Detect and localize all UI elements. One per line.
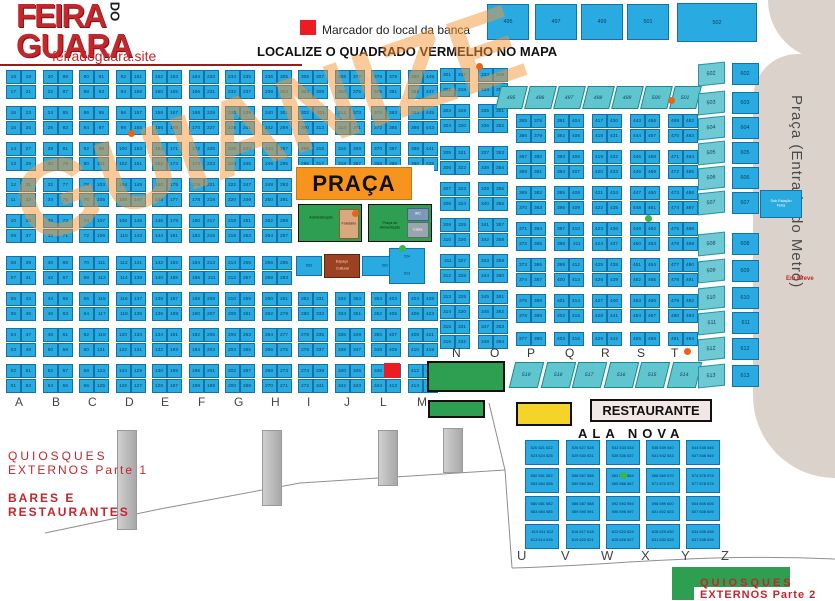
stall-cell[interactable]: 357 xyxy=(493,218,508,232)
stall-cell[interactable]: 348 xyxy=(371,343,386,357)
stall-cell[interactable]: 452 xyxy=(630,273,645,287)
stall-cell[interactable]: 308 xyxy=(440,197,455,211)
stall-cell[interactable]: 40 xyxy=(43,256,58,270)
stall-cell[interactable]: 302 xyxy=(440,83,455,97)
stall-cell[interactable]: 198 xyxy=(189,379,204,393)
stall-cell[interactable]: 341 xyxy=(478,218,493,232)
stall-cell[interactable]: 342 xyxy=(335,379,350,393)
stall-cell[interactable]: 285 xyxy=(277,256,292,270)
stall-cell[interactable]: 314 xyxy=(335,121,350,135)
stall-cell[interactable]: 490 xyxy=(683,258,698,272)
stall-cell[interactable]: 309 xyxy=(313,85,328,99)
stall-cell[interactable]: 174 xyxy=(189,157,204,171)
stall-cell[interactable]: 373 xyxy=(516,258,531,272)
stall-cell[interactable]: 339 xyxy=(313,364,328,378)
stall-cell[interactable]: 248 xyxy=(262,178,277,192)
stall-cell[interactable]: 334 xyxy=(335,307,350,321)
stall-cell[interactable]: 131 xyxy=(131,343,146,357)
banca-marker[interactable] xyxy=(384,363,400,378)
stall-cell[interactable]: 297 xyxy=(277,142,292,156)
stall-cell[interactable]: 269 xyxy=(240,379,255,393)
stall-cell[interactable]: 134 xyxy=(152,328,167,342)
alanova-box[interactable]: 574 575 576577 578 579 xyxy=(686,468,720,493)
skew-stall-cell[interactable]: 514 xyxy=(666,362,701,388)
stall-cell[interactable]: 07 xyxy=(6,271,21,285)
stall-cell[interactable]: 281 xyxy=(277,292,292,306)
stall-cell[interactable]: 370 xyxy=(371,142,386,156)
stall-cell[interactable]: 136 xyxy=(152,307,167,321)
stall-cell[interactable]: 26 xyxy=(43,121,58,135)
stall-cell[interactable]: 167 xyxy=(167,106,182,120)
stall-cell[interactable]: 247 xyxy=(240,178,255,192)
stall-cell[interactable]: 142 xyxy=(152,256,167,270)
stall-cell[interactable]: 205 xyxy=(204,328,219,342)
stall-cell[interactable]: 82 xyxy=(79,142,94,156)
stall-cell[interactable]: 160 xyxy=(152,85,167,99)
stall-cell[interactable]: 384 xyxy=(408,106,423,120)
stall-cell[interactable]: 203 xyxy=(204,343,219,357)
stall-cell[interactable]: 208 xyxy=(225,307,240,321)
stall-cell[interactable]: 272 xyxy=(298,379,313,393)
stall-cell[interactable]: 96 xyxy=(116,106,131,120)
stall-cell[interactable]: 412 xyxy=(408,364,423,378)
stall-cell[interactable]: 251 xyxy=(240,214,255,228)
stall-cell[interactable]: 185 xyxy=(167,271,182,285)
stall-cell[interactable]: 35 xyxy=(21,214,36,228)
stall-cell[interactable]: 158 xyxy=(152,106,167,120)
stall-cell[interactable]: 34 xyxy=(43,193,58,207)
stall-cell[interactable]: 455 xyxy=(630,332,645,346)
stall-cell[interactable]: 18 xyxy=(6,70,21,84)
stall-cell[interactable]: 417 xyxy=(592,114,607,128)
stall-cell[interactable]: 436 xyxy=(607,222,622,236)
stall-cell[interactable]: 235 xyxy=(240,70,255,84)
stall-cell[interactable]: 237 xyxy=(240,85,255,99)
stall-cell[interactable]: 465 xyxy=(645,273,660,287)
skew-stall-cell[interactable]: 499 xyxy=(611,86,644,109)
stall-cell[interactable]: 379 xyxy=(386,70,401,84)
stall-cell[interactable]: 123 xyxy=(94,364,109,378)
stall-cell[interactable]: 172 xyxy=(189,142,204,156)
stall-cell[interactable]: 456 xyxy=(645,114,660,128)
stall-cell[interactable]: 386 xyxy=(408,121,423,135)
stall-cell[interactable]: 126 xyxy=(116,379,131,393)
stall-cell[interactable]: 156 xyxy=(152,121,167,135)
stall-cell[interactable]: 478 xyxy=(668,273,683,287)
stall-cell[interactable]: 216 xyxy=(225,229,240,243)
stall-cell[interactable]: 84 xyxy=(79,121,94,135)
stall-cell[interactable]: 76 xyxy=(79,193,94,207)
stall-cell[interactable]: 80 xyxy=(79,157,94,171)
stall-cell[interactable]: 268 xyxy=(262,364,277,378)
stall-cell[interactable]: 376 xyxy=(516,309,531,323)
stall-cell[interactable]: 412 xyxy=(569,258,584,272)
stall-cell[interactable]: 398 xyxy=(554,237,569,251)
stall-cell[interactable]: 103 xyxy=(94,178,109,192)
stall-cell[interactable]: 311 xyxy=(313,106,328,120)
side-stall-inner[interactable]: 512 xyxy=(698,337,725,362)
stall-cell[interactable]: 135 xyxy=(131,307,146,321)
stall-cell[interactable]: 338 xyxy=(478,161,493,175)
skew-stall-cell[interactable]: 497 xyxy=(553,86,586,109)
stall-cell[interactable]: 36 xyxy=(43,214,58,228)
stall-cell[interactable]: 334 xyxy=(478,83,493,97)
stall-cell[interactable]: 370 xyxy=(516,201,531,215)
praca-box-524-523[interactable]: 524 523 xyxy=(389,248,425,284)
stall-cell[interactable]: 199 xyxy=(204,379,219,393)
stall-cell[interactable]: 139 xyxy=(131,271,146,285)
stall-cell[interactable]: 337 xyxy=(478,146,493,160)
stall-cell[interactable]: 477 xyxy=(668,258,683,272)
stall-cell[interactable]: 163 xyxy=(167,70,182,84)
stall-cell[interactable]: 306 xyxy=(298,70,313,84)
stall-cell[interactable]: 276 xyxy=(298,343,313,357)
stall-cell[interactable]: 369 xyxy=(516,186,531,200)
stall-cell[interactable]: 331 xyxy=(455,320,470,334)
stall-cell[interactable]: 438 xyxy=(607,258,622,272)
stall-cell[interactable]: 113 xyxy=(94,271,109,285)
stall-cell[interactable]: 445 xyxy=(630,150,645,164)
stall-cell[interactable]: 464 xyxy=(645,258,660,272)
stall-cell[interactable]: 401 xyxy=(554,294,569,308)
stall-cell[interactable]: 154 xyxy=(152,142,167,156)
alanova-box[interactable]: 580 581 582583 584 585 xyxy=(525,496,559,521)
stall-cell[interactable]: 446 xyxy=(630,165,645,179)
stall-cell[interactable]: 457 xyxy=(645,129,660,143)
stall-cell[interactable]: 406 xyxy=(569,150,584,164)
stall-cell[interactable]: 339 xyxy=(478,182,493,196)
stall-cell[interactable]: 335 xyxy=(313,328,328,342)
stall-cell[interactable]: 377 xyxy=(516,332,531,346)
alanova-box[interactable]: 634 635 636637 638 639 xyxy=(686,524,720,549)
stall-cell[interactable]: 241 xyxy=(240,121,255,135)
stall-cell[interactable]: 143 xyxy=(131,229,146,243)
stall-cell[interactable]: 426 xyxy=(592,273,607,287)
stall-cell[interactable]: 58 xyxy=(79,364,94,378)
stall-cell[interactable]: 233 xyxy=(204,70,219,84)
stall-cell[interactable]: 447 xyxy=(423,85,438,99)
stall-cell[interactable]: 335 xyxy=(478,104,493,118)
skew-stall-cell[interactable]: 498 xyxy=(582,86,615,109)
stall-cell[interactable]: 114 xyxy=(116,271,131,285)
stall-cell[interactable]: 320 xyxy=(455,119,470,133)
stall-cell[interactable]: 01 xyxy=(6,379,21,393)
stall-cell[interactable]: 107 xyxy=(94,214,109,228)
stall-cell[interactable]: 333 xyxy=(313,307,328,321)
stall-cell[interactable]: 189 xyxy=(167,307,182,321)
stall-cell[interactable]: 77 xyxy=(58,178,73,192)
stall-cell[interactable]: 303 xyxy=(440,104,455,118)
stall-cell[interactable]: 200 xyxy=(225,379,240,393)
stall-cell[interactable]: 375 xyxy=(350,85,365,99)
stall-cell[interactable]: 380 xyxy=(408,70,423,84)
stall-cell[interactable]: 289 xyxy=(277,214,292,228)
stall-cell[interactable]: 224 xyxy=(225,157,240,171)
stall-cell[interactable]: 13 xyxy=(6,157,21,171)
alanova-box[interactable]: 622 623 624625 626 627 xyxy=(606,524,640,549)
stall-cell[interactable]: 212 xyxy=(225,271,240,285)
stall-cell[interactable]: 147 xyxy=(131,193,146,207)
stall-cell[interactable]: 324 xyxy=(455,197,470,211)
stall-cell[interactable]: 315 xyxy=(440,320,455,334)
stall-cell[interactable]: 124 xyxy=(116,364,131,378)
stall-cell[interactable]: 97 xyxy=(94,121,109,135)
stall-cell[interactable]: 405 xyxy=(386,307,401,321)
stall-cell[interactable]: 106 xyxy=(116,193,131,207)
side-stall-outer[interactable]: 612 xyxy=(732,338,759,360)
stall-cell[interactable]: 244 xyxy=(262,142,277,156)
stall-cell[interactable]: 256 xyxy=(262,256,277,270)
stall-cell[interactable]: 402 xyxy=(554,309,569,323)
stall-cell[interactable]: 372 xyxy=(516,237,531,251)
stall-cell[interactable]: 267 xyxy=(240,364,255,378)
stall-cell[interactable]: 310 xyxy=(335,85,350,99)
stall-cell[interactable]: 304 xyxy=(440,119,455,133)
stall-cell[interactable]: 52 xyxy=(43,364,58,378)
stall-cell[interactable]: 367 xyxy=(516,150,531,164)
alanova-box[interactable]: 538 539 540541 542 543 xyxy=(646,440,680,465)
stall-cell[interactable]: 422 xyxy=(592,201,607,215)
stall-cell[interactable]: 93 xyxy=(94,85,109,99)
stall-cell[interactable]: 479 xyxy=(668,294,683,308)
stall-cell[interactable]: 343 xyxy=(350,379,365,393)
stall-cell[interactable]: 441 xyxy=(607,309,622,323)
stall-cell[interactable]: 431 xyxy=(607,129,622,143)
stall-cell[interactable]: 310 xyxy=(440,233,455,247)
stall-cell[interactable]: 295 xyxy=(277,157,292,171)
stall-cell[interactable]: 392 xyxy=(554,129,569,143)
stall-cell[interactable]: 29 xyxy=(21,157,36,171)
praca-box-583[interactable]: 583 xyxy=(296,256,322,276)
stall-cell[interactable]: 382 xyxy=(408,85,423,99)
stall-cell[interactable]: 63 xyxy=(58,307,73,321)
skew-stall-cell[interactable]: 495 xyxy=(495,86,528,109)
stall-cell[interactable]: 42 xyxy=(43,271,58,285)
side-stall-outer[interactable]: 602 xyxy=(732,63,759,85)
stall-cell[interactable]: 240 xyxy=(262,106,277,120)
stall-cell[interactable]: 274 xyxy=(298,364,313,378)
stall-cell[interactable]: 39 xyxy=(21,256,36,270)
stall-cell[interactable]: 27 xyxy=(21,142,36,156)
stall-cell[interactable]: 473 xyxy=(668,186,683,200)
stall-cell[interactable]: 165 xyxy=(167,85,182,99)
stall-cell[interactable]: 442 xyxy=(607,332,622,346)
stall-cell[interactable]: 218 xyxy=(225,214,240,228)
stall-cell[interactable]: 305 xyxy=(277,70,292,84)
stall-cell[interactable]: 486 xyxy=(683,186,698,200)
stall-cell[interactable]: 03 xyxy=(6,343,21,357)
stall-cell[interactable]: 309 xyxy=(440,218,455,232)
stall-cell[interactable]: 46 xyxy=(43,307,58,321)
stall-cell[interactable]: 386 xyxy=(531,258,546,272)
alanova-box[interactable]: 556 557 558559 560 561 xyxy=(566,468,600,493)
stall-cell[interactable]: 105 xyxy=(94,193,109,207)
stall-cell[interactable]: 353 xyxy=(350,292,365,306)
stall-cell[interactable]: 484 xyxy=(683,150,698,164)
stall-cell[interactable]: 394 xyxy=(554,165,569,179)
side-stall-outer[interactable]: 605 xyxy=(732,142,759,164)
side-stall-inner[interactable]: 513 xyxy=(698,364,725,389)
stall-cell[interactable]: 91 xyxy=(94,70,109,84)
stall-cell[interactable]: 226 xyxy=(225,142,240,156)
alanova-box[interactable]: 568 569 570571 572 573 xyxy=(646,468,680,493)
stall-cell[interactable]: 60 xyxy=(79,343,94,357)
stall-cell[interactable]: 302 xyxy=(298,106,313,120)
side-stall-outer[interactable]: 609 xyxy=(732,260,759,282)
stall-cell[interactable]: 32 xyxy=(43,178,58,192)
stall-cell[interactable]: 429 xyxy=(592,332,607,346)
stall-cell[interactable]: 383 xyxy=(386,106,401,120)
stall-cell[interactable]: 119 xyxy=(94,328,109,342)
stall-cell[interactable]: 184 xyxy=(189,256,204,270)
stall-cell[interactable]: 327 xyxy=(455,254,470,268)
stall-cell[interactable]: 138 xyxy=(152,292,167,306)
stall-cell[interactable]: 494 xyxy=(683,332,698,346)
stall-cell[interactable]: 449 xyxy=(630,222,645,236)
stall-cell[interactable]: 471 xyxy=(668,150,683,164)
stall-cell[interactable]: 148 xyxy=(152,193,167,207)
stall-cell[interactable]: 319 xyxy=(455,104,470,118)
stall-cell[interactable]: 171 xyxy=(167,142,182,156)
stall-cell[interactable]: 09 xyxy=(6,229,21,243)
stall-cell[interactable]: 485 xyxy=(683,165,698,179)
stall-cell[interactable]: 421 xyxy=(423,328,438,342)
stall-cell[interactable]: 476 xyxy=(668,237,683,251)
stall-cell[interactable]: 407 xyxy=(569,165,584,179)
stall-cell[interactable]: 102 xyxy=(116,157,131,171)
stall-cell[interactable]: 88 xyxy=(79,85,94,99)
stall-cell[interactable]: 389 xyxy=(531,309,546,323)
stall-cell[interactable]: 19 xyxy=(21,70,36,84)
stall-cell[interactable]: 353 xyxy=(493,146,508,160)
stall-cell[interactable]: 447 xyxy=(630,186,645,200)
stall-cell[interactable]: 128 xyxy=(152,379,167,393)
stall-cell[interactable]: 468 xyxy=(645,332,660,346)
stall-cell[interactable]: 315 xyxy=(313,142,328,156)
stall-cell[interactable]: 425 xyxy=(423,292,438,306)
stall-cell[interactable]: 346 xyxy=(478,305,493,319)
stall-cell[interactable]: 87 xyxy=(58,85,73,99)
stall-cell[interactable]: 90 xyxy=(79,70,94,84)
stall-cell[interactable]: 338 xyxy=(335,343,350,357)
stall-cell[interactable]: 258 xyxy=(262,271,277,285)
stall-cell[interactable]: 432 xyxy=(607,150,622,164)
alanova-box[interactable]: 526 527 528529 530 531 xyxy=(566,440,600,465)
stall-cell[interactable]: 344 xyxy=(371,379,386,393)
stall-cell[interactable]: 109 xyxy=(94,229,109,243)
stall-cell[interactable]: 92 xyxy=(116,70,131,84)
stall-cell[interactable]: 317 xyxy=(455,68,470,82)
stall-cell[interactable]: 193 xyxy=(167,343,182,357)
stall-cell[interactable]: 313 xyxy=(313,121,328,135)
stall-cell[interactable]: 282 xyxy=(298,292,313,306)
stall-cell[interactable]: 332 xyxy=(335,292,350,306)
alanova-box[interactable]: 610 611 612613 614 615 xyxy=(525,524,559,549)
stall-cell[interactable]: 362 xyxy=(493,305,508,319)
stall-cell[interactable]: 419 xyxy=(592,150,607,164)
stall-cell[interactable]: 100 xyxy=(116,142,131,156)
stall-cell[interactable]: 409 xyxy=(569,201,584,215)
stall-cell[interactable]: 371 xyxy=(516,222,531,236)
stall-cell[interactable]: 10 xyxy=(6,214,21,228)
stall-cell[interactable]: 371 xyxy=(350,121,365,135)
stall-cell[interactable]: 387 xyxy=(386,142,401,156)
stall-cell[interactable]: 43 xyxy=(21,292,36,306)
stall-cell[interactable]: 404 xyxy=(569,114,584,128)
stall-cell[interactable]: 374 xyxy=(516,273,531,287)
stall-cell[interactable]: 149 xyxy=(131,178,146,192)
stall-cell[interactable]: 444 xyxy=(630,129,645,143)
stall-cell[interactable]: 231 xyxy=(204,85,219,99)
stall-cell[interactable]: 79 xyxy=(58,157,73,171)
stall-cell[interactable]: 459 xyxy=(645,165,660,179)
stall-cell[interactable]: 344 xyxy=(478,269,493,283)
stall-cell[interactable]: 47 xyxy=(21,328,36,342)
stall-cell[interactable]: 340 xyxy=(478,197,493,211)
stall-cell[interactable]: 144 xyxy=(152,229,167,243)
stall-cell[interactable]: 291 xyxy=(277,193,292,207)
stall-cell[interactable]: 391 xyxy=(554,114,569,128)
stall-cell[interactable]: 85 xyxy=(58,106,73,120)
stall-cell[interactable]: 179 xyxy=(167,214,182,228)
stall-cell[interactable]: 423 xyxy=(592,222,607,236)
side-stall-inner[interactable]: 502 xyxy=(698,62,725,87)
stall-cell[interactable]: 449 xyxy=(423,70,438,84)
stall-cell[interactable]: 30 xyxy=(43,157,58,171)
stall-cell[interactable]: 159 xyxy=(131,85,146,99)
stall-cell[interactable]: 423 xyxy=(423,307,438,321)
stall-cell[interactable]: 257 xyxy=(240,271,255,285)
stall-cell[interactable]: 460 xyxy=(645,186,660,200)
stall-cell[interactable]: 78 xyxy=(79,178,94,192)
stall-cell[interactable]: 306 xyxy=(440,161,455,175)
stall-cell[interactable]: 336 xyxy=(335,328,350,342)
stall-cell[interactable]: 395 xyxy=(554,186,569,200)
stall-cell[interactable]: 55 xyxy=(58,379,73,393)
stall-cell[interactable]: 467 xyxy=(645,309,660,323)
stall-cell[interactable]: 366 xyxy=(516,129,531,143)
stall-cell[interactable]: 86 xyxy=(79,106,94,120)
stall-cell[interactable]: 488 xyxy=(683,222,698,236)
stall-cell[interactable]: 443 xyxy=(630,114,645,128)
stall-cell[interactable]: 259 xyxy=(240,292,255,306)
stall-cell[interactable]: 242 xyxy=(262,121,277,135)
stall-cell[interactable]: 451 xyxy=(630,258,645,272)
stall-cell[interactable]: 359 xyxy=(493,254,508,268)
stall-cell[interactable]: 277 xyxy=(277,328,292,342)
stall-cell[interactable]: 220 xyxy=(225,193,240,207)
stall-cell[interactable]: 384 xyxy=(531,222,546,236)
stall-cell[interactable]: 206 xyxy=(225,328,240,342)
stall-cell[interactable]: 243 xyxy=(240,142,255,156)
skew-stall-cell[interactable]: 518 xyxy=(540,362,575,388)
stall-cell[interactable]: 453 xyxy=(630,294,645,308)
stall-cell[interactable]: 54 xyxy=(43,379,58,393)
stall-cell[interactable]: 57 xyxy=(58,364,73,378)
stall-cell[interactable]: 180 xyxy=(189,214,204,228)
stall-cell[interactable]: 372 xyxy=(371,121,386,135)
stall-cell[interactable]: 349 xyxy=(493,68,508,82)
stall-cell[interactable]: 368 xyxy=(516,165,531,179)
stall-cell[interactable]: 303 xyxy=(277,85,292,99)
stall-cell[interactable]: 151 xyxy=(131,157,146,171)
side-stall-inner[interactable]: 507 xyxy=(698,191,725,216)
side-stall-outer[interactable]: 613 xyxy=(732,365,759,387)
stall-cell[interactable]: 482 xyxy=(683,114,698,128)
stall-cell[interactable]: 108 xyxy=(116,214,131,228)
stall-cell[interactable]: 445 xyxy=(423,106,438,120)
alanova-box[interactable]: 532 533 534535 536 537 xyxy=(606,440,640,465)
